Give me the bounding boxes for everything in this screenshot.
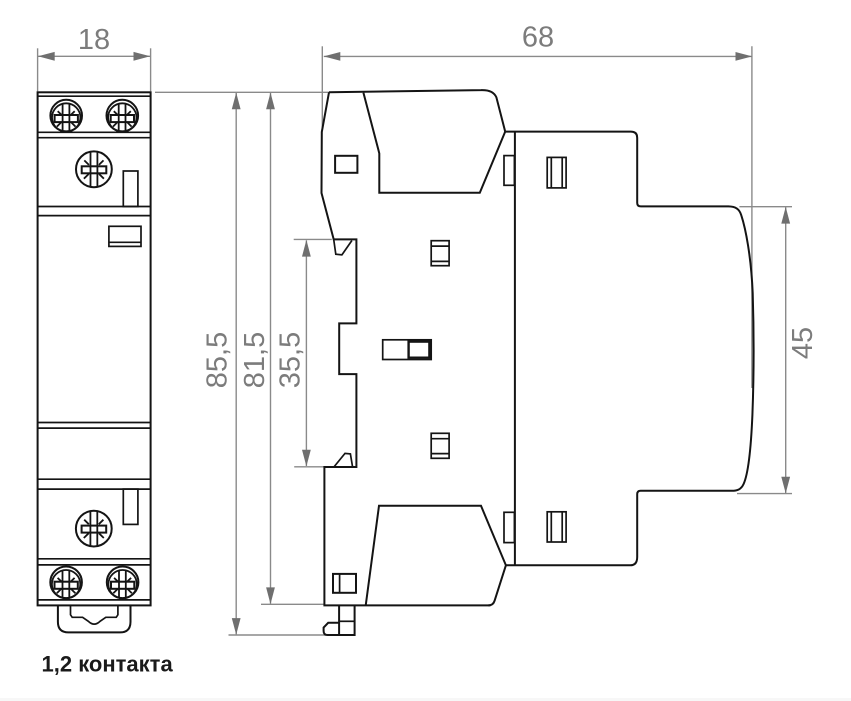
svg-text:18: 18	[78, 24, 110, 56]
svg-text:1,2 контакта: 1,2 контакта	[42, 652, 174, 677]
svg-text:85,5: 85,5	[202, 332, 234, 388]
svg-text:35,5: 35,5	[275, 332, 307, 388]
svg-text:81,5: 81,5	[239, 332, 271, 388]
svg-text:45: 45	[787, 327, 819, 359]
svg-text:68: 68	[522, 21, 554, 53]
